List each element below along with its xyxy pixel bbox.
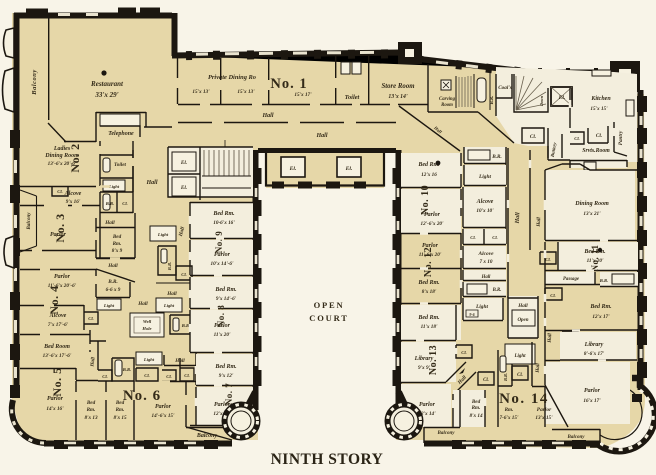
- svg-text:Cl.: Cl.: [596, 133, 602, 139]
- svg-text:8'x 18': 8'x 18': [422, 289, 437, 295]
- svg-text:Room: Room: [441, 103, 453, 108]
- svg-text:Hole: Hole: [141, 326, 151, 331]
- svg-text:El.: El.: [180, 185, 187, 191]
- svg-text:Pantry: Pantry: [618, 130, 624, 145]
- svg-text:No. 12: No. 12: [423, 247, 434, 277]
- svg-text:Rm.: Rm.: [505, 407, 514, 413]
- svg-text:Hall: Hall: [145, 180, 157, 186]
- svg-text:Balcony: Balcony: [567, 435, 586, 440]
- svg-text:Parlor: Parlor: [47, 396, 64, 402]
- svg-text:No. 2: No. 2: [68, 143, 82, 172]
- svg-text:9'x 14'-6': 9'x 14'-6': [216, 296, 237, 302]
- svg-text:Parlor: Parlor: [214, 252, 231, 258]
- svg-text:Cl.: Cl.: [574, 136, 580, 141]
- svg-text:Bed Rm.: Bed Rm.: [214, 364, 237, 370]
- svg-text:Parlor: Parlor: [214, 323, 231, 329]
- svg-text:El.: El.: [180, 160, 187, 166]
- svg-text:No. 3: No. 3: [53, 213, 67, 242]
- svg-text:El.: El.: [345, 166, 353, 172]
- svg-text:9-6: 9-6: [469, 312, 474, 317]
- svg-text:Cl.: Cl.: [88, 316, 94, 321]
- svg-text:14'-6'x 15': 14'-6'x 15': [152, 413, 175, 419]
- svg-text:Light: Light: [475, 304, 488, 310]
- svg-text:8'-6'x 17': 8'-6'x 17': [584, 351, 605, 357]
- svg-text:B.R.: B.R.: [599, 278, 608, 283]
- svg-text:10-6'x 16': 10-6'x 16': [213, 220, 235, 226]
- svg-text:B.R.: B.R.: [492, 288, 502, 293]
- svg-text:B.R.: B.R.: [107, 279, 118, 285]
- svg-text:Toilet: Toilet: [345, 94, 360, 101]
- svg-text:Telephone: Telephone: [108, 131, 134, 137]
- svg-text:33'x 29': 33'x 29': [94, 91, 118, 99]
- svg-text:Toilet: Toilet: [114, 162, 126, 168]
- svg-text:Cl.: Cl.: [184, 373, 190, 378]
- svg-text:Parlor: Parlor: [584, 388, 601, 394]
- svg-text:Light: Light: [478, 174, 491, 180]
- svg-text:B.R.: B.R.: [122, 367, 131, 372]
- svg-text:15'x 17': 15'x 17': [294, 92, 312, 98]
- svg-text:Hall: Hall: [107, 263, 118, 269]
- svg-text:Balcony: Balcony: [437, 431, 456, 436]
- svg-text:No. 9: No. 9: [214, 231, 224, 254]
- svg-text:Kitchen: Kitchen: [590, 96, 611, 102]
- svg-text:Library: Library: [414, 356, 434, 362]
- svg-text:8'x 13: 8'x 13: [84, 415, 98, 421]
- svg-text:Balcony: Balcony: [27, 212, 32, 231]
- svg-text:6-6 x 9: 6-6 x 9: [106, 287, 121, 293]
- svg-text:Cl.: Cl.: [166, 374, 172, 379]
- svg-text:Hall: Hall: [315, 133, 327, 139]
- svg-text:7'x 17'-6': 7'x 17'-6': [48, 322, 69, 328]
- svg-text:11'x 18': 11'x 18': [421, 324, 438, 330]
- svg-text:No. 10: No. 10: [420, 185, 431, 215]
- svg-text:Rm.: Rm.: [472, 405, 481, 411]
- svg-text:Alcove: Alcove: [476, 199, 494, 205]
- svg-text:Parlor: Parlor: [419, 402, 436, 408]
- svg-text:No. 5: No. 5: [50, 367, 64, 396]
- svg-text:Hall: Hall: [535, 362, 542, 373]
- svg-text:No. 14: No. 14: [499, 391, 549, 407]
- svg-text:Hall: Hall: [481, 275, 491, 280]
- svg-text:Hall: Hall: [137, 301, 148, 307]
- svg-text:No. 1: No. 1: [270, 76, 307, 92]
- svg-text:Balcony: Balcony: [196, 433, 218, 439]
- svg-text:Parlor: Parlor: [54, 274, 71, 280]
- svg-text:Cl.: Cl.: [144, 373, 150, 378]
- svg-text:Light: Light: [513, 354, 526, 359]
- svg-text:El.: El.: [558, 95, 566, 101]
- svg-text:Hall: Hall: [515, 212, 522, 225]
- svg-text:COURT: COURT: [309, 313, 348, 323]
- svg-text:Hall: Hall: [166, 291, 177, 297]
- svg-text:9'x 9': 9'x 9': [418, 365, 431, 371]
- svg-text:OPEN: OPEN: [314, 300, 345, 310]
- svg-text:Bed: Bed: [86, 400, 96, 406]
- svg-text:Balcony: Balcony: [31, 69, 38, 96]
- svg-text:Rm.: Rm.: [87, 407, 96, 413]
- svg-text:11'x 20': 11'x 20': [214, 332, 231, 338]
- svg-text:Coal's: Coal's: [498, 85, 512, 91]
- svg-text:Alcove: Alcove: [478, 251, 495, 257]
- svg-text:Cl.: Cl.: [181, 272, 187, 277]
- svg-text:Cl.: Cl.: [122, 201, 128, 206]
- svg-text:Alcove: Alcove: [64, 191, 82, 197]
- svg-text:Bed Rm.: Bed Rm.: [417, 315, 440, 321]
- svg-text:Cl.: Cl.: [102, 374, 108, 379]
- svg-text:Hall: Hall: [174, 358, 185, 364]
- svg-text:Bed: Bed: [112, 234, 122, 240]
- svg-text:B.R.: B.R.: [491, 154, 502, 160]
- svg-text:16'x 17': 16'x 17': [583, 398, 601, 404]
- svg-text:8'x 9: 8'x 9: [112, 248, 123, 254]
- svg-text:Cl.: Cl.: [461, 350, 467, 355]
- svg-text:Hall: Hall: [547, 332, 554, 343]
- svg-text:Cl.: Cl.: [517, 373, 523, 378]
- svg-text:Light: Light: [103, 303, 115, 308]
- svg-text:Parlor: Parlor: [155, 404, 172, 410]
- svg-text:Bed Room: Bed Room: [43, 344, 70, 350]
- svg-text:Parlor: Parlor: [537, 407, 552, 413]
- svg-text:Well: Well: [143, 319, 152, 324]
- svg-text:Bed Rm.: Bed Rm.: [589, 304, 612, 310]
- svg-text:No. 4: No. 4: [47, 285, 61, 314]
- svg-text:10'x 14'-6': 10'x 14'-6': [211, 261, 234, 267]
- svg-text:10'x 10': 10'x 10': [476, 208, 494, 214]
- svg-text:Library: Library: [584, 342, 604, 348]
- svg-text:12'x 17': 12'x 17': [592, 314, 610, 320]
- svg-text:Hall: Hall: [517, 303, 528, 309]
- svg-text:B.R.: B.R.: [490, 96, 495, 106]
- svg-text:15'x 13': 15'x 13': [237, 89, 255, 95]
- svg-text:El.: El.: [289, 166, 297, 172]
- svg-text:Alcove: Alcove: [49, 313, 67, 319]
- svg-text:Srvts.Room: Srvts.Room: [582, 148, 610, 154]
- svg-text:13'x 15': 13'x 15': [535, 415, 553, 421]
- svg-text:Passage: Passage: [563, 277, 580, 282]
- svg-text:Cl.: Cl.: [57, 189, 63, 194]
- svg-text:Carving: Carving: [439, 97, 456, 102]
- svg-text:Light: Light: [143, 357, 155, 362]
- svg-text:Hall: Hall: [261, 113, 273, 119]
- svg-text:12'-6'x 20': 12'-6'x 20': [421, 221, 444, 227]
- svg-text:B.R.: B.R.: [105, 201, 114, 206]
- svg-text:Parlor: Parlor: [50, 232, 67, 238]
- svg-text:Cl.: Cl.: [550, 293, 556, 298]
- svg-text:Store Room: Store Room: [381, 83, 414, 90]
- svg-text:Bed Rm.: Bed Rm.: [214, 287, 237, 293]
- svg-text:No. 6: No. 6: [123, 388, 161, 404]
- svg-text:Cl.: Cl.: [470, 235, 476, 240]
- svg-text:7 x 10: 7 x 10: [480, 259, 493, 265]
- svg-text:Light: Light: [163, 303, 175, 308]
- svg-text:Bed Rm.: Bed Rm.: [212, 211, 235, 217]
- svg-text:Private Dining Ro: Private Dining Ro: [208, 74, 256, 81]
- svg-text:8'x 15: 8'x 15: [113, 415, 127, 421]
- svg-text:13'-6'x 17'-6': 13'-6'x 17'-6': [43, 353, 72, 359]
- svg-text:13'x 21': 13'x 21': [583, 211, 601, 217]
- svg-text:13'x 14': 13'x 14': [388, 94, 408, 100]
- svg-text:Hall: Hall: [536, 216, 543, 227]
- svg-text:Down: Down: [539, 95, 544, 107]
- svg-text:Hall: Hall: [104, 220, 115, 226]
- svg-text:9'x 12': 9'x 12': [219, 373, 234, 379]
- svg-text:Cl.: Cl.: [530, 134, 536, 140]
- svg-text:9'x 16': 9'x 16': [66, 199, 81, 205]
- svg-text:7-6'x 15': 7-6'x 15': [500, 415, 519, 421]
- svg-text:12'x 16: 12'x 16: [421, 172, 437, 178]
- svg-text:14'x 16': 14'x 16': [46, 406, 64, 412]
- svg-text:Light: Light: [157, 232, 169, 237]
- svg-text:Open: Open: [517, 318, 528, 323]
- svg-text:B.R.: B.R.: [167, 262, 172, 271]
- svg-text:Rm.: Rm.: [116, 407, 125, 413]
- svg-text:B.R.: B.R.: [503, 373, 508, 382]
- svg-text:Rm.: Rm.: [113, 241, 122, 247]
- svg-text:Cl.: Cl.: [483, 378, 489, 383]
- svg-text:Cl.: Cl.: [492, 235, 498, 240]
- svg-text:8'x 14: 8'x 14: [469, 413, 483, 419]
- svg-text:15'x 13': 15'x 13': [192, 89, 210, 95]
- svg-text:NINTH STORY: NINTH STORY: [271, 451, 384, 468]
- svg-text:15'x 15': 15'x 15': [590, 106, 608, 112]
- svg-text:Parlor: Parlor: [424, 212, 441, 218]
- svg-text:Restaurant: Restaurant: [90, 80, 124, 88]
- svg-text:Bed Rm.: Bed Rm.: [417, 280, 440, 286]
- svg-text:Dining Room: Dining Room: [574, 201, 609, 207]
